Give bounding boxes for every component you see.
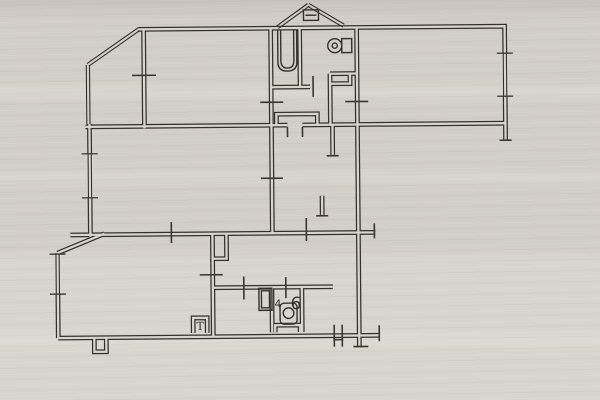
wall-kitchen-left-channel xyxy=(213,259,214,337)
bathtub-inner xyxy=(281,30,294,68)
label-room-4: 4 xyxy=(275,298,282,310)
bay-slant-window-outer xyxy=(89,31,140,66)
window-lower-left-cover xyxy=(54,254,61,294)
plan-group: 64T xyxy=(47,2,515,352)
toilet-bowl xyxy=(328,39,342,53)
window-right-room-cover xyxy=(501,53,508,96)
cabin-plinth-channel xyxy=(275,325,300,332)
label-room-6: 6 xyxy=(290,294,301,314)
window-living-left-cover xyxy=(86,154,93,198)
floor-plan-drawing: 64T xyxy=(0,0,600,400)
wall-bath-right-channel xyxy=(300,28,301,87)
kitchen-sink-inner xyxy=(261,291,269,308)
bay-left-window-inner xyxy=(89,65,90,124)
label-t: T xyxy=(196,320,204,333)
wall-bay-divider-channel xyxy=(144,29,145,128)
toilet-tank xyxy=(342,39,352,53)
vent-shaft xyxy=(212,234,226,259)
peak-window-right-inner xyxy=(309,3,344,24)
bay-left-window-outer xyxy=(86,65,87,124)
scanned-floor-plan-sheet: 64T xyxy=(0,0,600,400)
toilet-drain xyxy=(332,43,337,48)
bay-slant-window-inner xyxy=(87,28,138,63)
